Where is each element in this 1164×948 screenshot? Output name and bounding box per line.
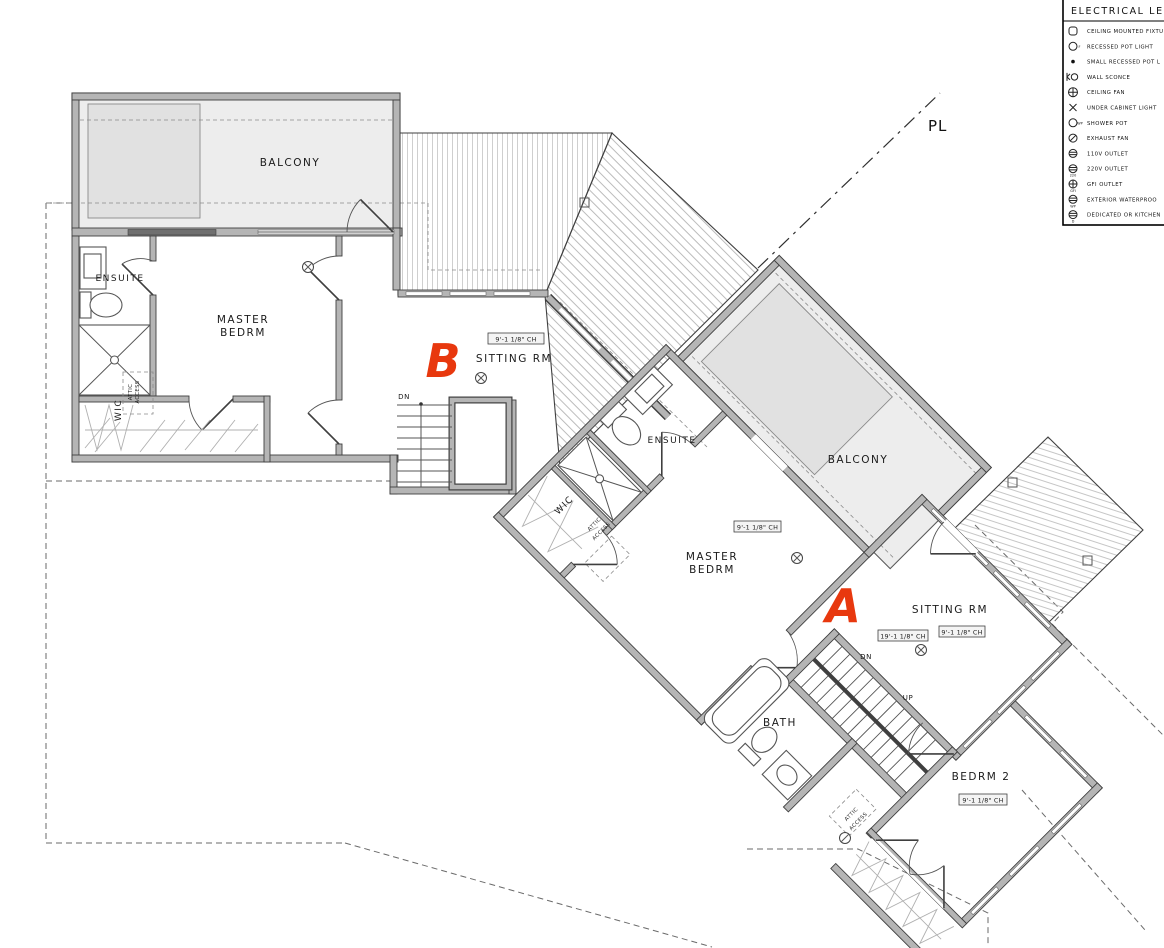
unit-b-balcony-skylight [88,104,200,218]
unit-a-bedrm2-ch-tag: 9'-1 1/8" CH [962,797,1003,805]
window [1024,715,1052,743]
unit-b-wic-label: WIC [114,399,124,421]
unit-a-sitting-ch-tag: 9'-1 1/8" CH [941,629,982,637]
unit-b-sitting-ch-tag: 9'-1 1/8" CH [495,336,536,344]
svg-text:EXTERIOR WATERPROO: EXTERIOR WATERPROO [1087,197,1157,203]
unit-b-sitting-label: SITTING RM [476,353,552,365]
unit-a-balcony-label: BALCONY [828,454,889,466]
unit-a-bath-label: BATH [763,717,797,729]
unit-a-bedrm2-label: BEDRM 2 [952,771,1011,783]
svg-text:WP: WP [1077,121,1082,125]
unit-b-letter: B [425,334,460,388]
ceiling-fan-icon [916,645,927,656]
unit-a-up-label: UP [903,694,914,702]
window [1009,846,1040,877]
window [971,887,999,915]
unit-a-letter: A [822,579,861,633]
unit-a-ensuite-label: ENSUITE [647,436,696,446]
svg-text:F: F [1079,45,1081,49]
svg-text:WP: WP [1070,204,1075,208]
window [1051,803,1082,834]
unit-b-balcony-label: BALCONY [260,157,321,169]
svg-text:DEDICATED OR KITCHEN: DEDICATED OR KITCHEN [1087,213,1161,219]
unit-b-attic-label-1: ATTIC [128,384,134,401]
ceiling-fan-icon [303,262,314,273]
exhaust-fan-icon [840,833,851,844]
ceiling-fan-icon [476,373,487,384]
unit-b-toilet [80,292,122,318]
unit-a-sitting-label: SITTING RM [912,604,988,616]
window [406,292,442,296]
window [128,230,216,236]
svg-text:RECESSED POT LIGHT: RECESSED POT LIGHT [1087,44,1153,50]
window [450,292,486,296]
svg-text:110V OUTLET: 110V OUTLET [1087,151,1128,157]
svg-text:UNDER CABINET LIGHT: UNDER CABINET LIGHT [1087,106,1157,112]
unit-b-master-label-1: MASTER [217,314,269,326]
unit-b-dn-label: DN [398,393,410,401]
legend-title: ELECTRICAL LE [1071,6,1164,17]
small-recessed-pot-light-icon [1071,60,1075,64]
unit-b-ensuite-label: ENSUITE [95,274,144,284]
svg-text:220V OUTLET: 220V OUTLET [1087,167,1128,173]
unit-a-attic-access-wic [585,536,630,581]
unit-a-dn-label: DN [860,653,872,661]
window [1060,750,1088,778]
svg-text:GFI: GFI [1070,189,1076,193]
svg-text:D: D [1072,220,1075,224]
unit-a-sitting-ch-high-tag: 19'-1 1/8" CH [880,633,925,641]
electrical-legend: ELECTRICAL LE CEILING MOUNTED FIXTU F RE… [1063,0,1164,225]
svg-text:220: 220 [1070,174,1076,178]
floor-plan-canvas: B A BALCONY MASTER BEDRM ENSUITE WIC ATT… [0,0,1164,948]
property-line [758,93,940,268]
unit-a-master-label-1: MASTER [686,551,738,563]
svg-text:GFI OUTLET: GFI OUTLET [1087,182,1123,188]
unit-b-master-label-2: BEDRM [220,327,266,339]
unit-a-wic-label: WIC [553,494,576,517]
unit-a-master-ch-tag: 9'-1 1/8" CH [737,524,778,532]
gfi-outlet-icon [1069,180,1077,188]
window [494,292,530,296]
unit-b-closet-hangers [85,405,258,452]
ceiling-fan-icon [792,553,803,564]
svg-text:WALL SCONCE: WALL SCONCE [1087,75,1131,81]
svg-text:CEILING FAN: CEILING FAN [1087,90,1125,96]
window [1031,651,1060,680]
svg-text:SHOWER POT: SHOWER POT [1087,121,1128,127]
svg-text:CEILING MOUNTED FIXTU: CEILING MOUNTED FIXTU [1087,29,1164,35]
window [963,719,992,748]
unit-b-stairs [390,400,516,494]
svg-text:EXHAUST FAN: EXHAUST FAN [1087,136,1129,142]
unit-b-attic-label-2: ACCESS [135,381,141,404]
svg-text:SMALL RECESSED POT L: SMALL RECESSED POT L [1087,60,1160,66]
ceiling-fan-icon [1069,88,1078,97]
property-line-label: PL [928,117,947,135]
unit-a-master-label-2: BEDRM [689,564,735,576]
